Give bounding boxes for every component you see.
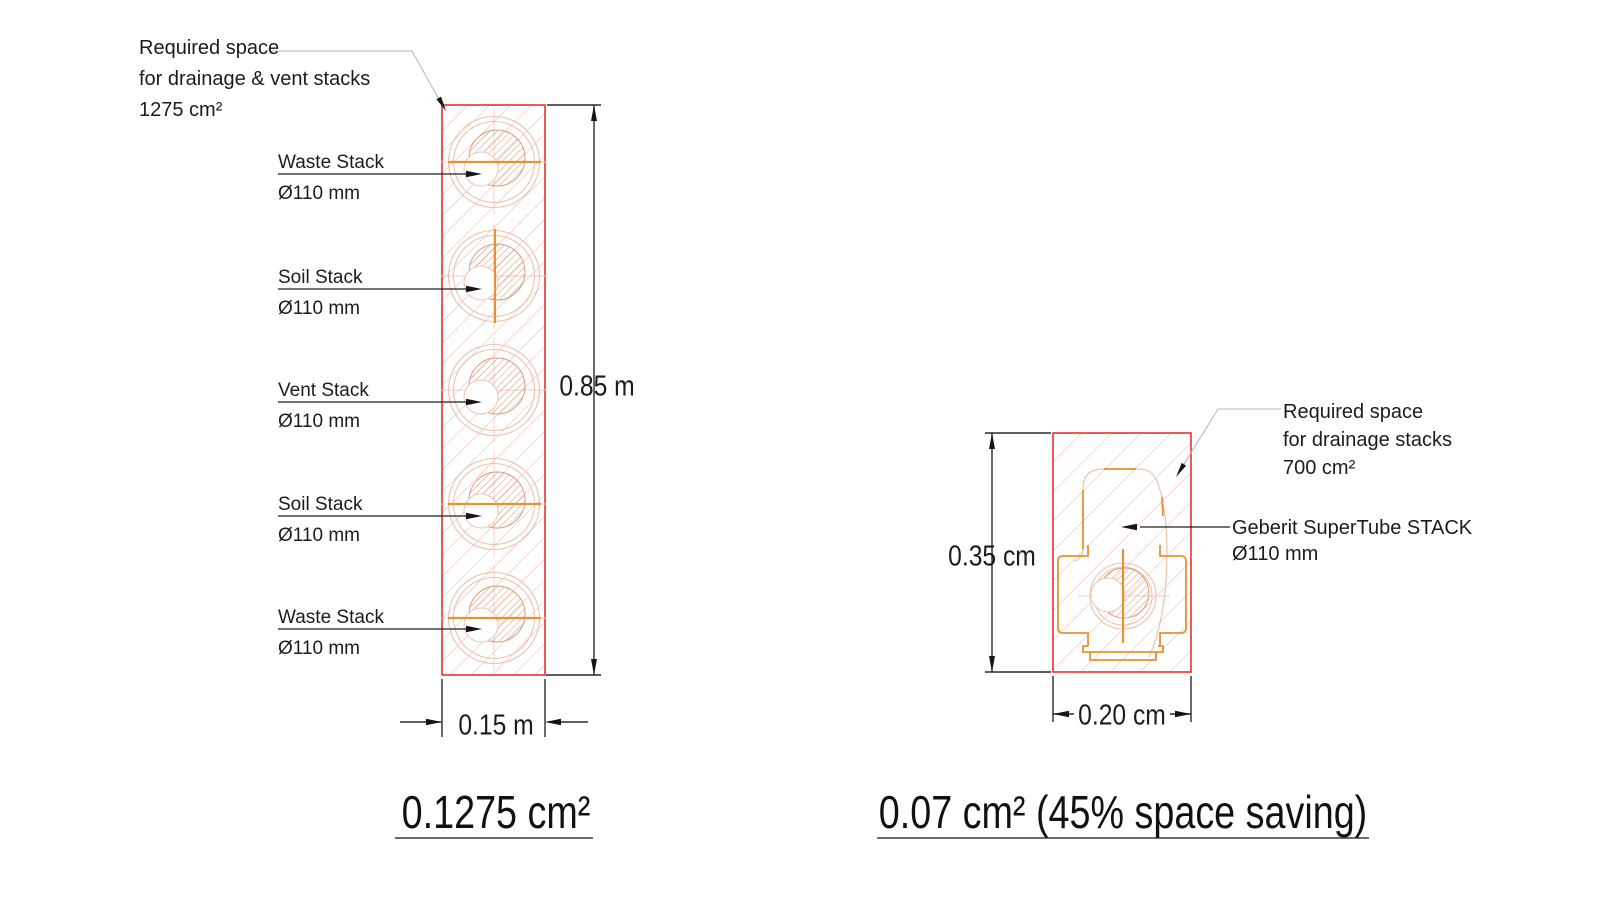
supertube-label-size: Ø110 mm (1232, 541, 1472, 567)
stack-name: Waste Stack (278, 153, 384, 173)
stack-label-1: Waste Stack Ø110 mm (278, 153, 384, 204)
left-width-dimension-text: 0.15 m (458, 710, 533, 743)
stack-size: Ø110 mm (278, 412, 369, 432)
stack-name: Soil Stack (278, 268, 362, 288)
annotation-line: Required space (139, 33, 370, 64)
annotation-line: Required space (1283, 398, 1452, 426)
drawing-canvas: Required space for drainage & vent stack… (0, 0, 1600, 900)
stack-size: Ø110 mm (278, 184, 384, 204)
dim-arrow-down-icon (989, 656, 995, 672)
dim-arrow-left-icon (545, 719, 561, 725)
dim-arrow-up-icon (989, 433, 995, 449)
stack-name: Vent Stack (278, 381, 369, 401)
stack-label-4: Soil Stack Ø110 mm (278, 495, 362, 546)
stack-label-3: Vent Stack Ø110 mm (278, 381, 369, 432)
stack-label-5: Waste Stack Ø110 mm (278, 608, 384, 659)
stack-name: Waste Stack (278, 608, 384, 628)
left-caption: 0.1275 cm² (402, 787, 591, 837)
annotation-line: for drainage stacks (1283, 426, 1452, 454)
left-annotation: Required space for drainage & vent stack… (139, 33, 370, 126)
annotation-line: 1275 cm² (139, 95, 370, 126)
dim-arrow-down-icon (591, 659, 597, 675)
dim-arrow-up-icon (591, 105, 597, 121)
right-height-dimension-text: 0.35 cm (948, 541, 1036, 574)
annotation-line: 700 cm² (1283, 454, 1452, 482)
right-width-dimension-text: 0.20 cm (1074, 700, 1170, 733)
stack-label-2: Soil Stack Ø110 mm (278, 268, 362, 319)
dim-arrow-right-icon (426, 719, 442, 725)
right-caption: 0.07 cm² (45% space saving) (879, 787, 1367, 837)
supertube-label-line: Geberit SuperTube STACK (1232, 515, 1472, 541)
annotation-line: for drainage & vent stacks (139, 64, 370, 95)
left-wall-section (441, 105, 547, 675)
dim-arrow-right-icon (1175, 711, 1191, 717)
right-wall-section (1053, 433, 1191, 672)
stack-size: Ø110 mm (278, 639, 384, 659)
dim-arrow-left-icon (1053, 711, 1069, 717)
stack-size: Ø110 mm (278, 299, 362, 319)
stack-size: Ø110 mm (278, 526, 362, 546)
supertube-label: Geberit SuperTube STACK Ø110 mm (1232, 515, 1472, 567)
left-height-dimension-text: 0.85 m (559, 371, 634, 404)
stack-name: Soil Stack (278, 495, 362, 515)
right-annotation: Required space for drainage stacks 700 c… (1283, 398, 1452, 482)
